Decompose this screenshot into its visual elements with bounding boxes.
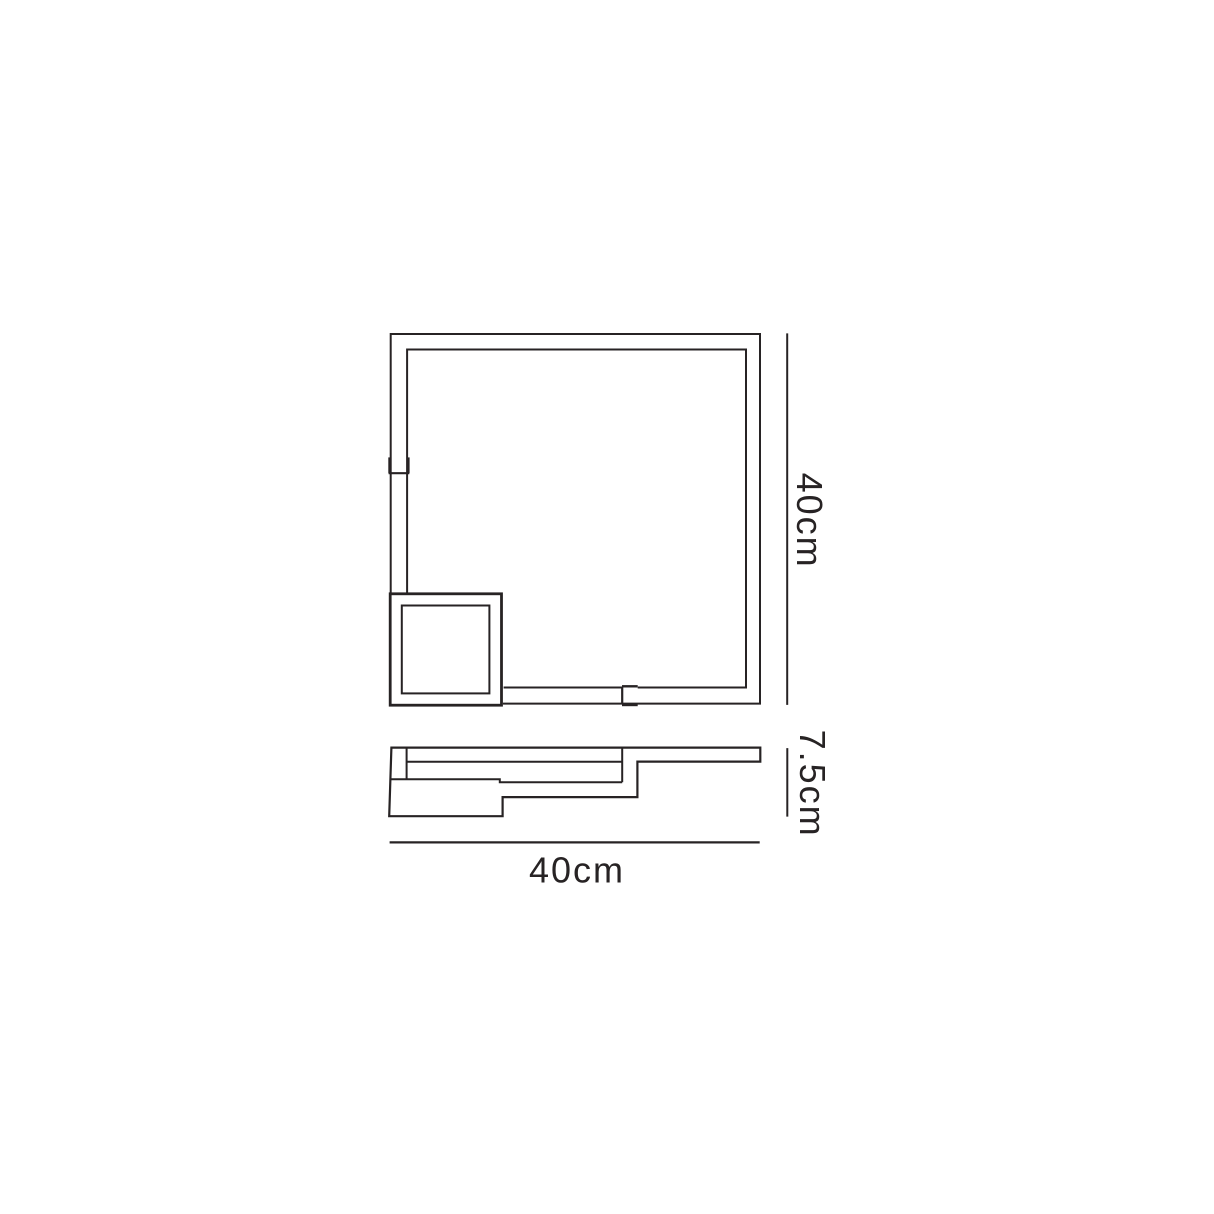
svg-text:7.5cm: 7.5cm — [792, 730, 833, 838]
svg-text:40cm: 40cm — [529, 850, 625, 891]
svg-text:40cm: 40cm — [789, 473, 830, 569]
